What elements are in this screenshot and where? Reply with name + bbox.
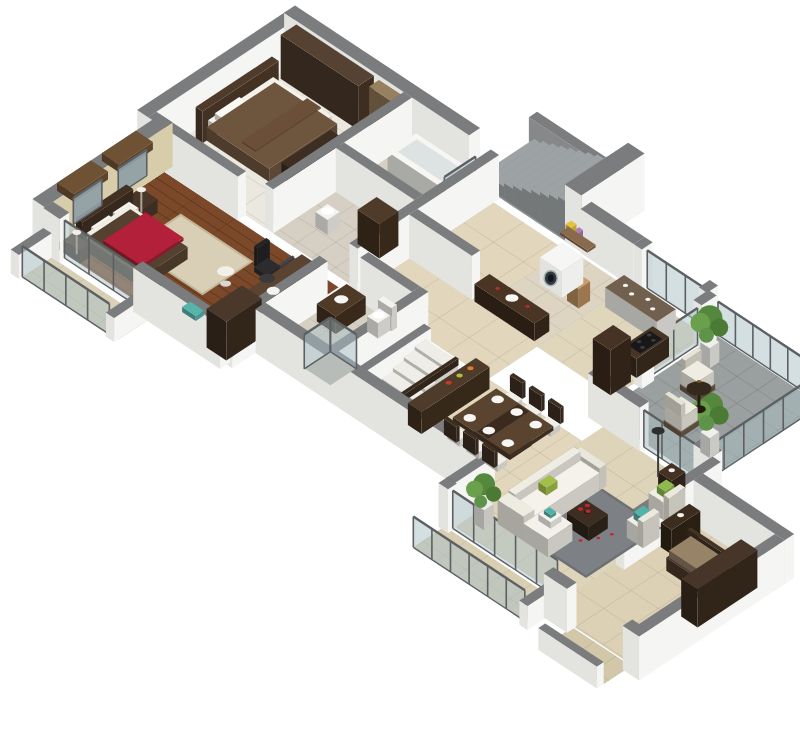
basin-corridor — [505, 294, 518, 302]
basin-masterbath — [334, 295, 348, 303]
side-table-decor — [669, 468, 675, 472]
wall-foyer-bottom-2 — [623, 619, 649, 680]
desk-papers — [267, 287, 280, 295]
bidet-seat — [321, 207, 334, 215]
tulip-chair-seat — [217, 266, 234, 276]
fridge — [593, 325, 631, 395]
floorplan-3d-render — [0, 0, 800, 752]
toilet-seat — [372, 311, 385, 318]
office-chair-base — [259, 274, 275, 283]
tulip-chair-base — [220, 280, 231, 286]
floorplan-canvas — [0, 0, 800, 752]
balcony-bottle — [697, 380, 702, 383]
console-decor — [677, 513, 684, 517]
